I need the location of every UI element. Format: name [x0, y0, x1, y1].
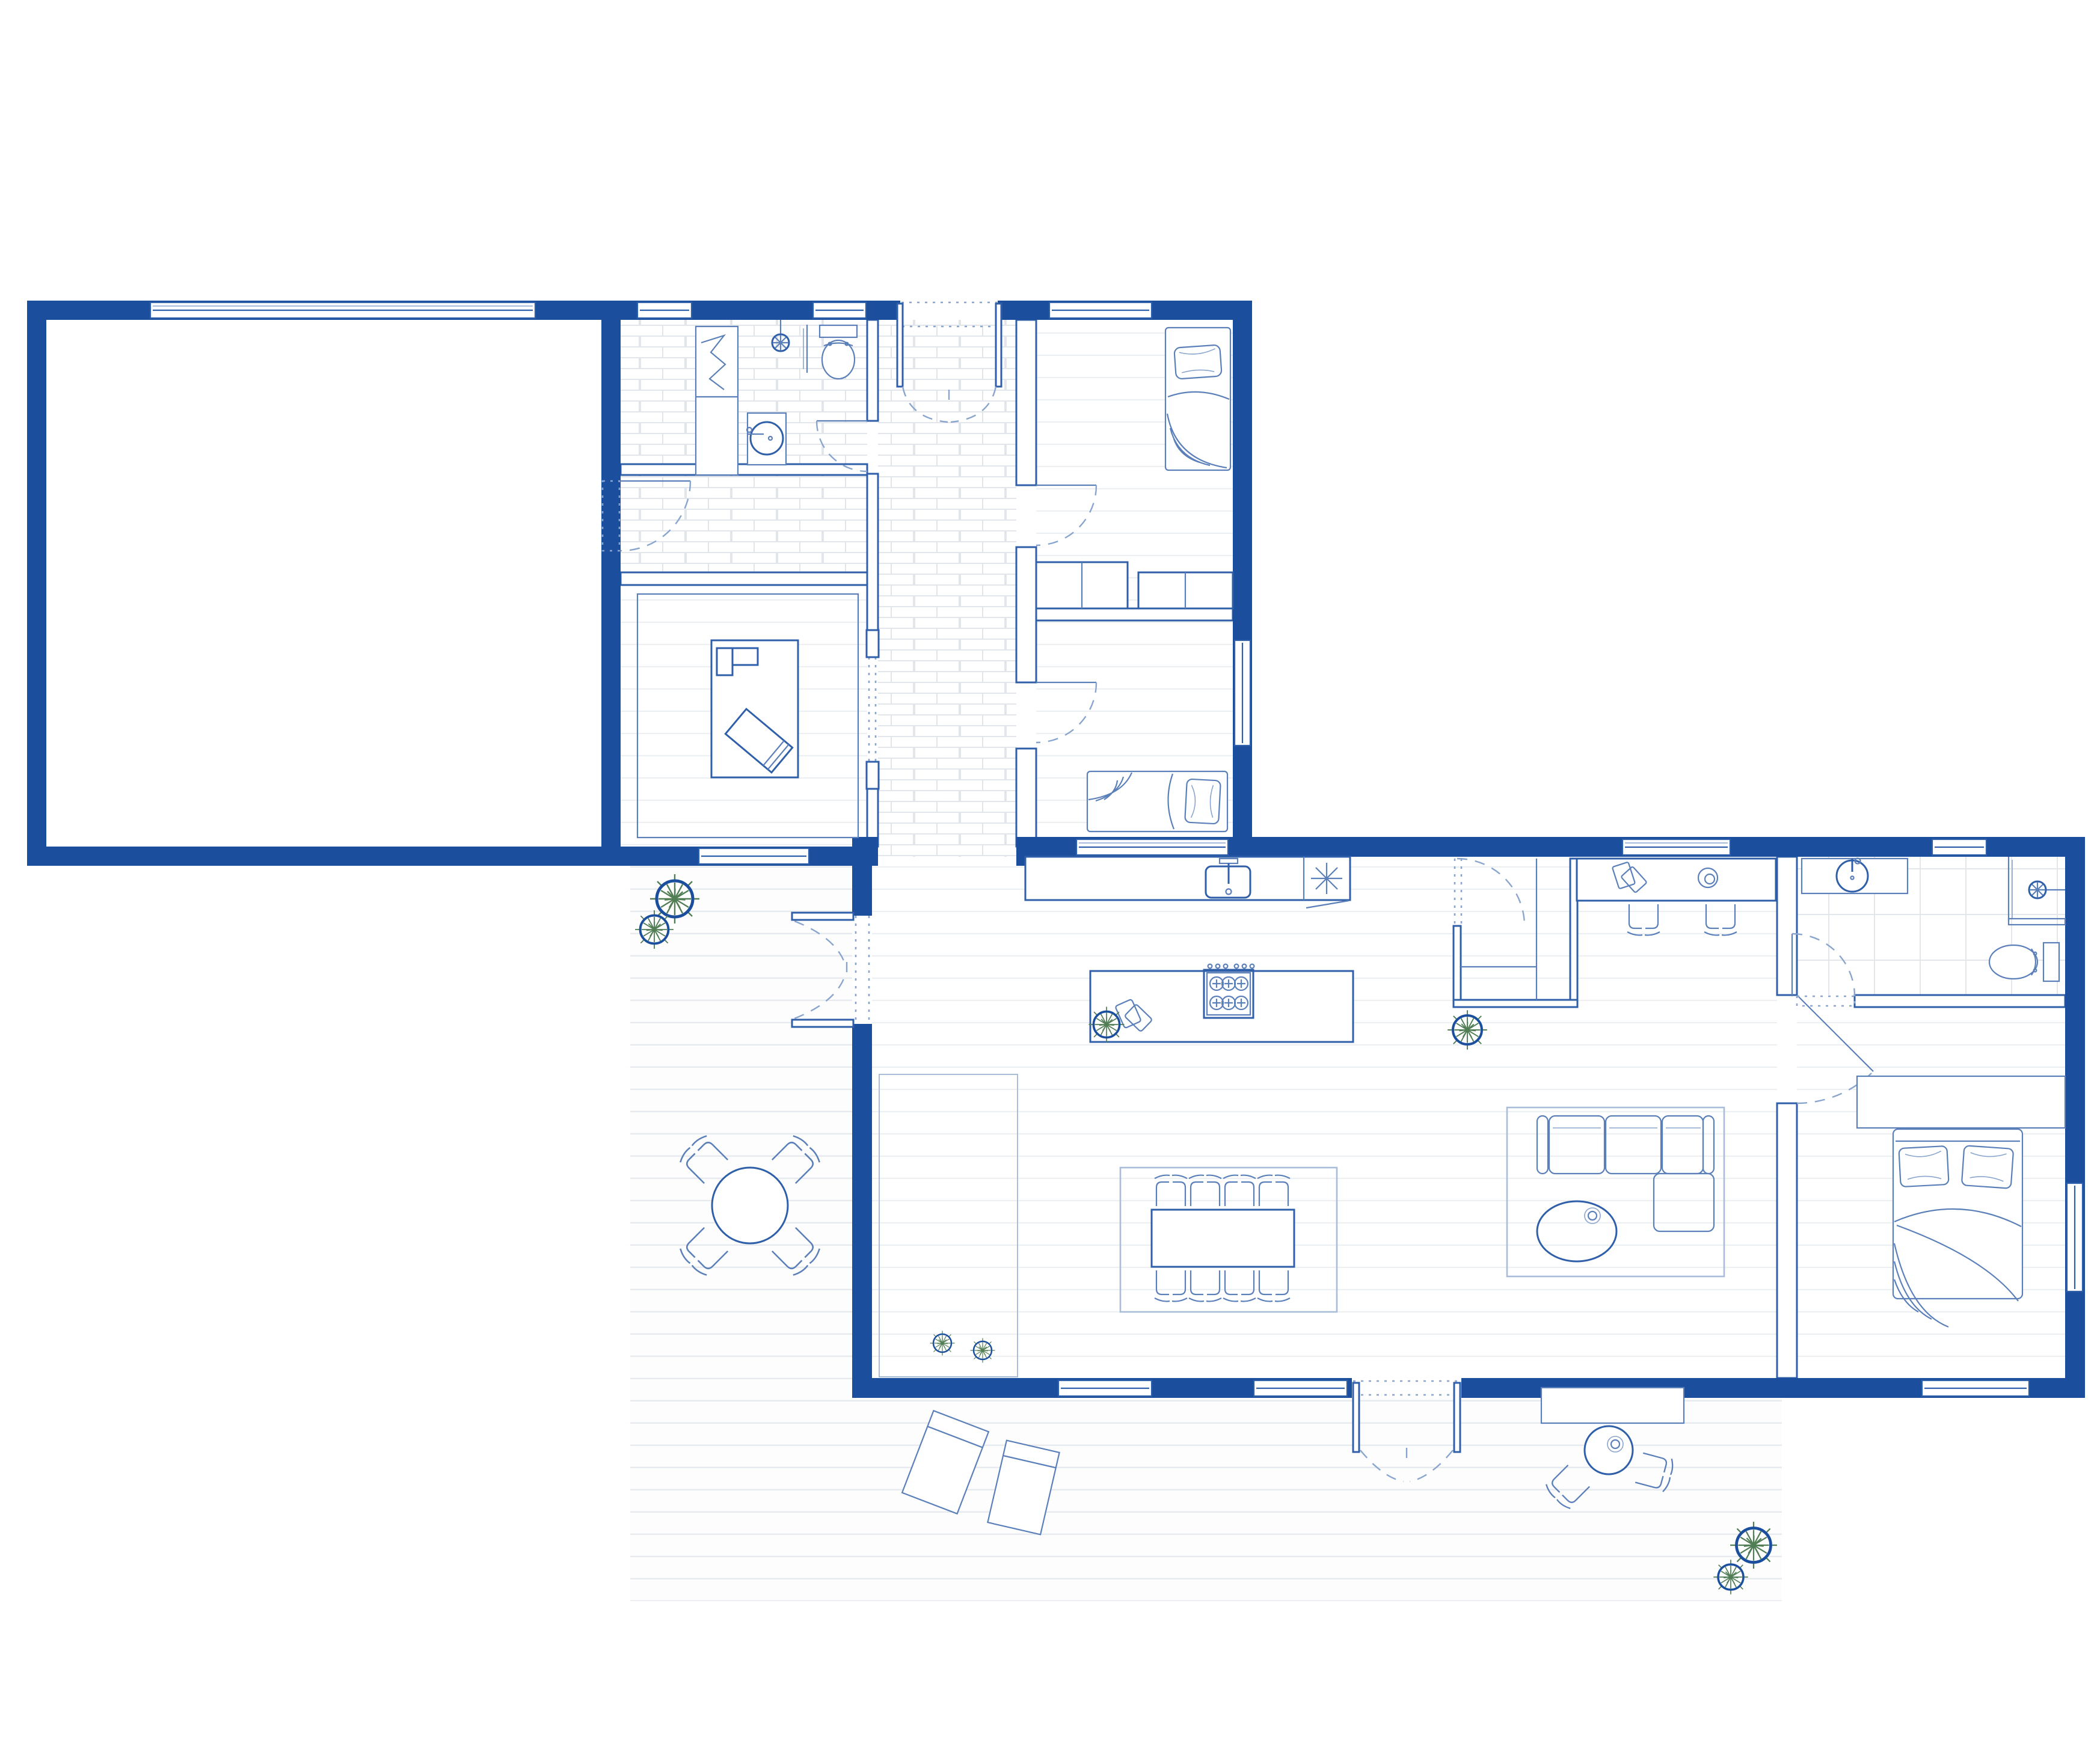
vanity-basin-2: [1802, 859, 1908, 894]
wall-bath-strip: [621, 464, 867, 475]
wall-lower-bottom: [852, 1378, 2085, 1398]
wardrobe-2: [1138, 572, 1233, 608]
wall-bedroom1-bedroom2: [1036, 608, 1233, 620]
potted-plant: [971, 1338, 995, 1363]
floor-bathroom: [621, 320, 867, 464]
toilet-1: [820, 325, 857, 379]
workstation-desk: [1577, 859, 1776, 901]
floor-plan: [0, 0, 2100, 1749]
single-bed-1: [1165, 328, 1230, 470]
window-garage: [150, 302, 535, 318]
potted-plant: [1448, 1010, 1487, 1050]
headboard: [1857, 1076, 2065, 1128]
window-living-south: [1254, 1380, 1347, 1396]
double-bed: [1893, 1129, 2022, 1327]
window-ensuite: [1932, 839, 1986, 855]
outdoor-bench: [1541, 1388, 1684, 1423]
vanity-basin-1: [747, 413, 786, 465]
potted-plant: [930, 1331, 955, 1356]
page: [0, 0, 2100, 1749]
wall-hall-right-b: [1016, 547, 1036, 682]
wall-hall-right-a: [1016, 320, 1036, 485]
potted-plant: [1730, 1522, 1777, 1569]
kitchen-counter: [1025, 857, 1350, 908]
single-bed-2: [1087, 771, 1227, 832]
wall-upper-right: [1233, 320, 1252, 847]
wall-lower-right: [2065, 857, 2085, 1378]
window-master-south: [1922, 1380, 2029, 1396]
wall-lower-top-stub: [852, 837, 878, 857]
wall-living-master-a: [1777, 857, 1797, 995]
potted-plant: [635, 910, 674, 949]
kitchen-island: [1090, 964, 1353, 1042]
wall-upper-left: [27, 320, 46, 847]
floor-garage: [46, 320, 601, 847]
window-bathroom: [637, 302, 692, 318]
window-bedroom2-right: [1235, 640, 1250, 746]
window-kitchen: [1076, 839, 1228, 855]
window-bedroom1: [1049, 302, 1152, 318]
bistro-table: [1585, 1426, 1633, 1474]
patio-table: [712, 1168, 788, 1243]
window-wc: [813, 302, 866, 318]
wall-strip-office: [621, 572, 867, 585]
window-office: [699, 848, 809, 864]
toilet-2: [1989, 943, 2059, 981]
potted-plant: [1713, 1560, 1748, 1594]
wall-lower-left-a: [852, 857, 872, 916]
wall-lower-left-b: [852, 1024, 872, 1398]
floor-hall-strip: [621, 475, 867, 572]
window-master-right: [2067, 1183, 2083, 1291]
wall-hall-left-a: [867, 320, 878, 421]
dining-table: [1152, 1210, 1294, 1267]
bedroom2-furniture: [1087, 771, 1227, 832]
wall-hall-right-c: [1016, 749, 1036, 847]
linen-closet: [696, 326, 738, 475]
potted-plant: [1088, 1006, 1124, 1042]
wall-ensuite-bedroom: [1855, 995, 2065, 1007]
wardrobe-1: [1036, 562, 1128, 608]
floor-hallway: [878, 320, 1016, 857]
wall-living-master-b: [1777, 1103, 1797, 1378]
window-dining-south: [1058, 1380, 1152, 1396]
window-desk: [1623, 839, 1730, 855]
wall-garage-right: [601, 320, 621, 847]
